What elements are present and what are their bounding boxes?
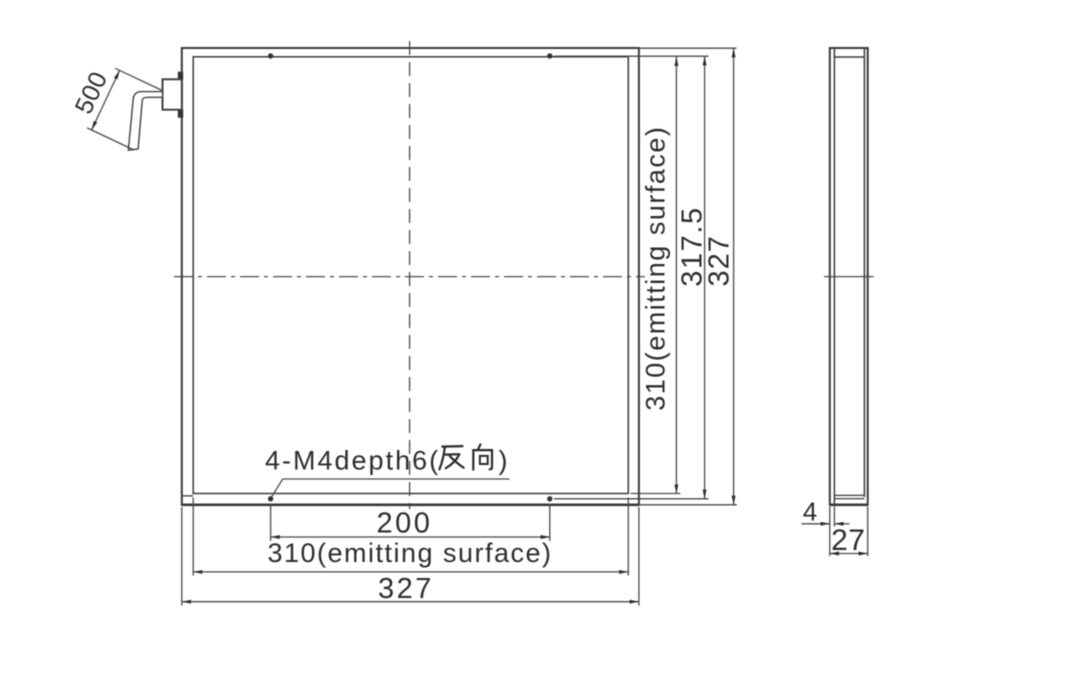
svg-text:27: 27 xyxy=(831,524,865,557)
svg-text:4: 4 xyxy=(803,497,817,527)
svg-text:310(emitting surface): 310(emitting surface) xyxy=(267,538,552,568)
svg-text:500: 500 xyxy=(70,67,114,118)
svg-text:4-M4depth6(: 4-M4depth6( xyxy=(265,445,440,475)
svg-text:): ) xyxy=(499,445,508,475)
svg-text:310(emitting surface): 310(emitting surface) xyxy=(641,126,671,411)
svg-text:327: 327 xyxy=(704,235,736,286)
svg-text:327: 327 xyxy=(378,573,434,605)
svg-text:200: 200 xyxy=(377,507,433,539)
